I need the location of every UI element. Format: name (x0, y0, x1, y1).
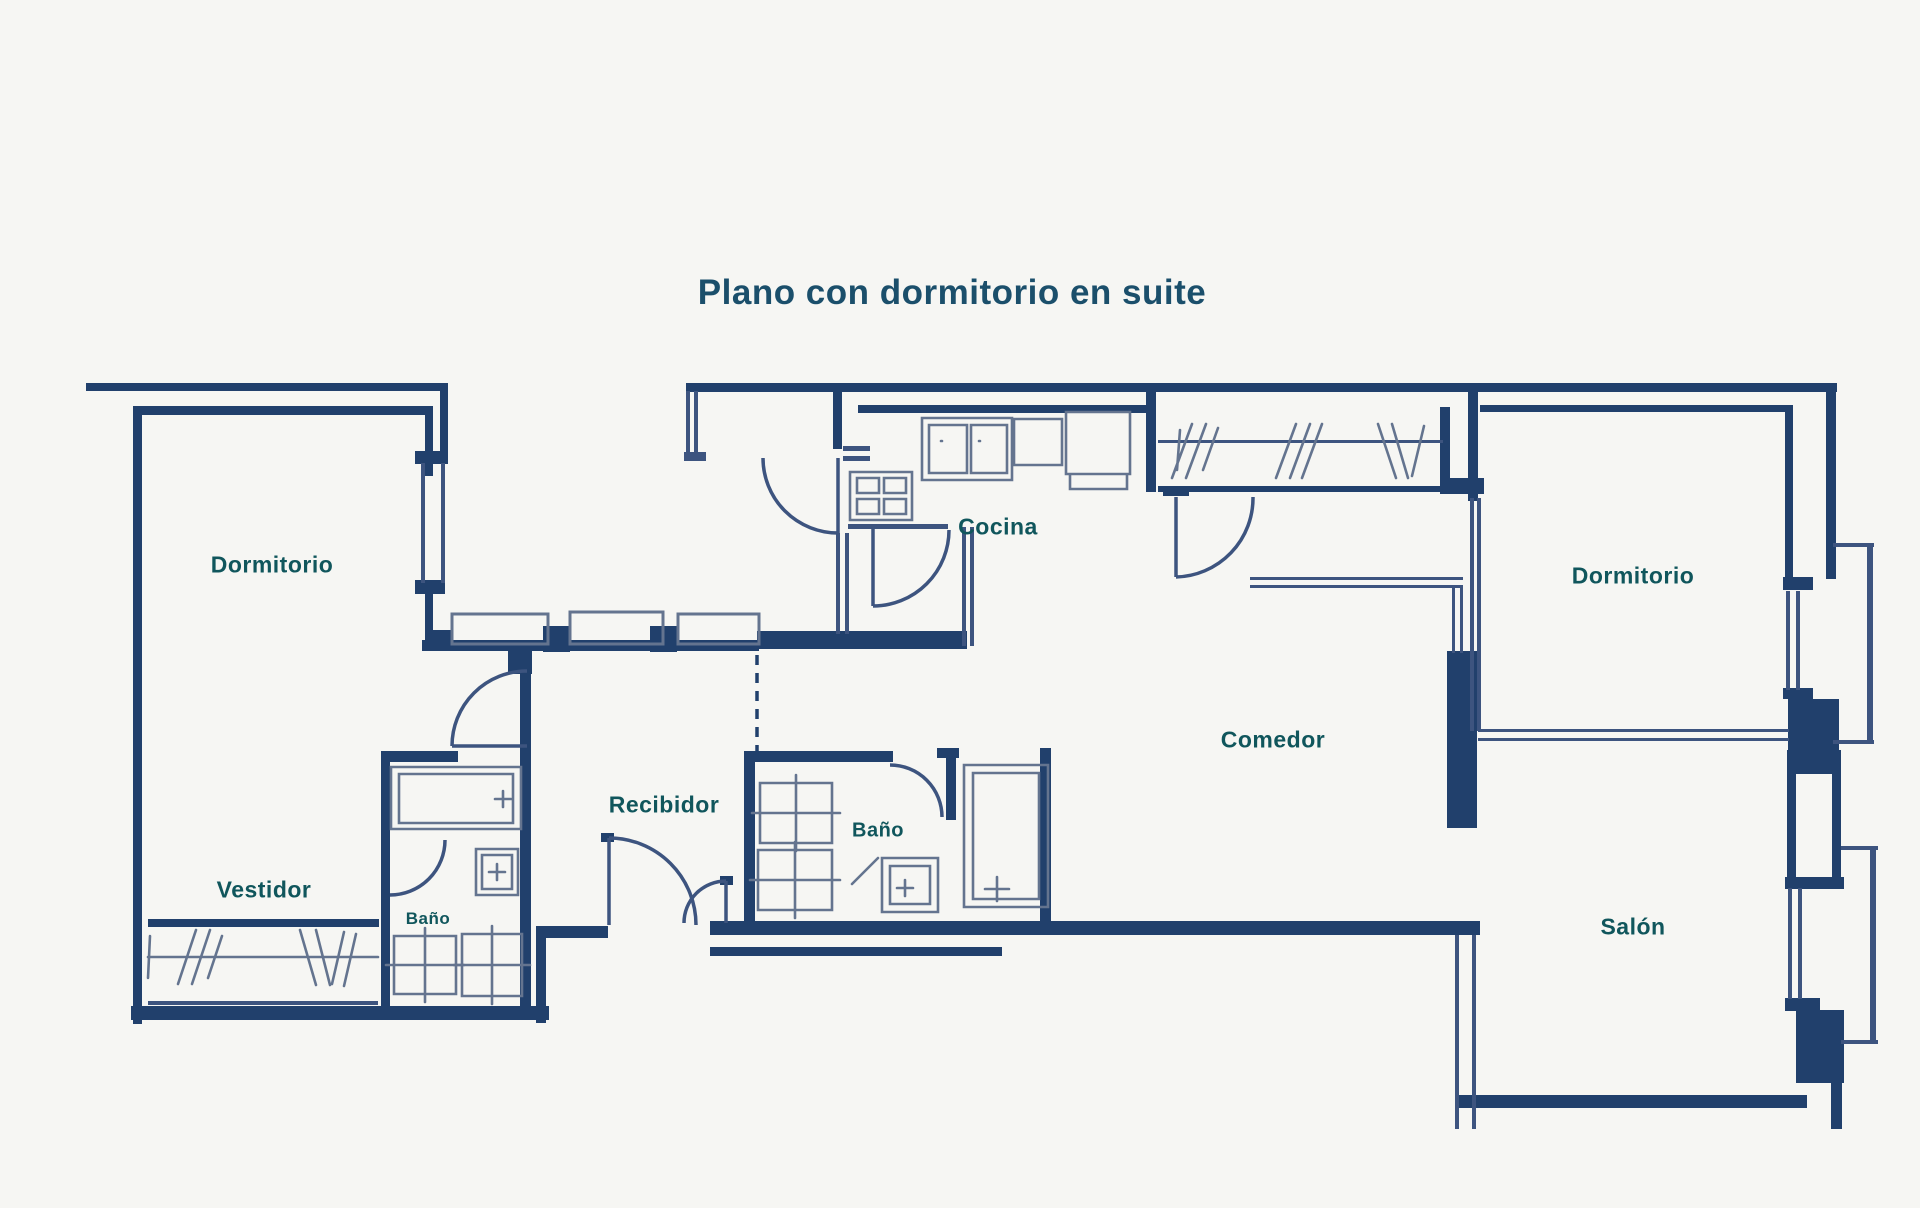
wall-segment (131, 1006, 549, 1020)
door-bano-suite (390, 840, 445, 895)
floor-plan-canvas: Plano con dormitorio en suite Dormitorio… (0, 0, 1920, 1208)
wall-segment (133, 406, 142, 1024)
wall-segment (1468, 391, 1478, 501)
glazing-marks-gallery (1172, 424, 1424, 478)
wall-segment (1787, 750, 1796, 879)
wall-segment (744, 751, 893, 762)
partition-line (1867, 543, 1873, 744)
partition-line (441, 463, 445, 583)
partition-line (843, 446, 870, 451)
wall-segment (1455, 1095, 1807, 1108)
partition-line (1472, 935, 1476, 1129)
floor-plan-drawing (0, 0, 1920, 1208)
wall-segment (757, 631, 967, 649)
wall-segment (1783, 577, 1813, 590)
partition-line (970, 527, 974, 646)
window (678, 614, 759, 644)
partition-line (1470, 498, 1474, 731)
plan-title: Plano con dormitorio en suite (698, 273, 1206, 313)
wall-segment (1796, 1010, 1844, 1083)
partition-line (1788, 888, 1792, 999)
door-cocina (763, 458, 838, 533)
room-label-dormitorio-left: Dormitorio (211, 552, 334, 579)
wall-segment (381, 751, 390, 1009)
toilet-main (852, 858, 938, 912)
partition-line (1250, 585, 1463, 588)
window (452, 614, 548, 644)
wall-segment (937, 748, 959, 758)
door-vestidor (452, 671, 527, 746)
room-label-salon: Salón (1600, 914, 1665, 941)
partition-line (1833, 740, 1874, 744)
wall-segment (1831, 1082, 1842, 1129)
partition-line (1796, 591, 1800, 690)
partition-line (1250, 577, 1463, 580)
room-label-bano-main: Baño (852, 820, 904, 843)
room-label-comedor: Comedor (1221, 727, 1325, 754)
room-label-recibidor: Recibidor (609, 792, 720, 819)
wall-segment (710, 947, 1002, 956)
wall-segment (86, 383, 447, 391)
wall-segment (440, 383, 448, 462)
glazing-marks-wardrobe (148, 930, 378, 986)
partition-line (1452, 588, 1455, 653)
partition-line (1460, 588, 1463, 653)
partition-line (148, 1001, 378, 1005)
room-label-bano-suite: Baño (406, 909, 451, 929)
partition-line (1870, 846, 1876, 1044)
vanity-suite-2 (454, 926, 530, 1004)
kitchen-sink (922, 418, 1012, 480)
wall-segment (1158, 486, 1443, 492)
room-label-dormitorio-right: Dormitorio (1572, 563, 1695, 590)
partition-line (1478, 738, 1789, 741)
partition-line (848, 524, 948, 529)
partition-line (1786, 591, 1790, 690)
entrance-door-leaf-small (684, 881, 726, 923)
wall-segment (833, 387, 842, 449)
wall-segment (425, 630, 453, 651)
toilet-suite (476, 849, 518, 895)
window (570, 612, 663, 644)
bathtub-suite (391, 767, 521, 829)
wall-segment (1826, 383, 1836, 579)
partition-line (694, 391, 698, 456)
kitchen-hob (850, 472, 912, 520)
wall-segment (133, 406, 433, 415)
kitchen-fridge (1066, 412, 1130, 489)
wall-segment (415, 580, 445, 594)
door-comedor (1176, 497, 1253, 577)
wall-segment (381, 751, 458, 762)
partition-line (686, 391, 690, 456)
wall-segment (1832, 750, 1841, 879)
wall-segment (148, 919, 379, 927)
kitchen-appliance (1014, 419, 1062, 465)
vanity-main-2 (750, 842, 840, 918)
vanity-suite-1 (386, 928, 464, 1002)
partition-line (421, 463, 425, 583)
partition-line (962, 527, 966, 646)
wall-segment (744, 751, 755, 934)
partition-line (684, 452, 706, 461)
wall-segment (946, 757, 956, 820)
door-bano-main (890, 765, 942, 817)
partition-line (1798, 888, 1802, 999)
partition-line (1455, 935, 1459, 1129)
wall-segment (686, 383, 1837, 392)
wall-segment (1785, 405, 1793, 579)
room-label-vestidor: Vestidor (217, 877, 312, 904)
shower-main (964, 765, 1048, 907)
partition-line (836, 533, 840, 634)
room-label-cocina: Cocina (958, 514, 1038, 541)
partition-line (1841, 1040, 1878, 1044)
wall-segment (538, 926, 608, 938)
partition-line (1477, 498, 1481, 731)
partition-line (843, 456, 870, 461)
wall-segment (710, 921, 1480, 935)
wall-segment (425, 406, 433, 476)
door-hall-cocina (873, 527, 949, 606)
partition-line (845, 533, 849, 634)
wall-segment (415, 451, 448, 464)
vanity-main-1 (752, 775, 840, 851)
wall-segment (1785, 998, 1820, 1011)
wall-segment (1480, 405, 1786, 412)
partition-line (1478, 729, 1789, 732)
entrance-door-leaf-large (609, 838, 696, 925)
